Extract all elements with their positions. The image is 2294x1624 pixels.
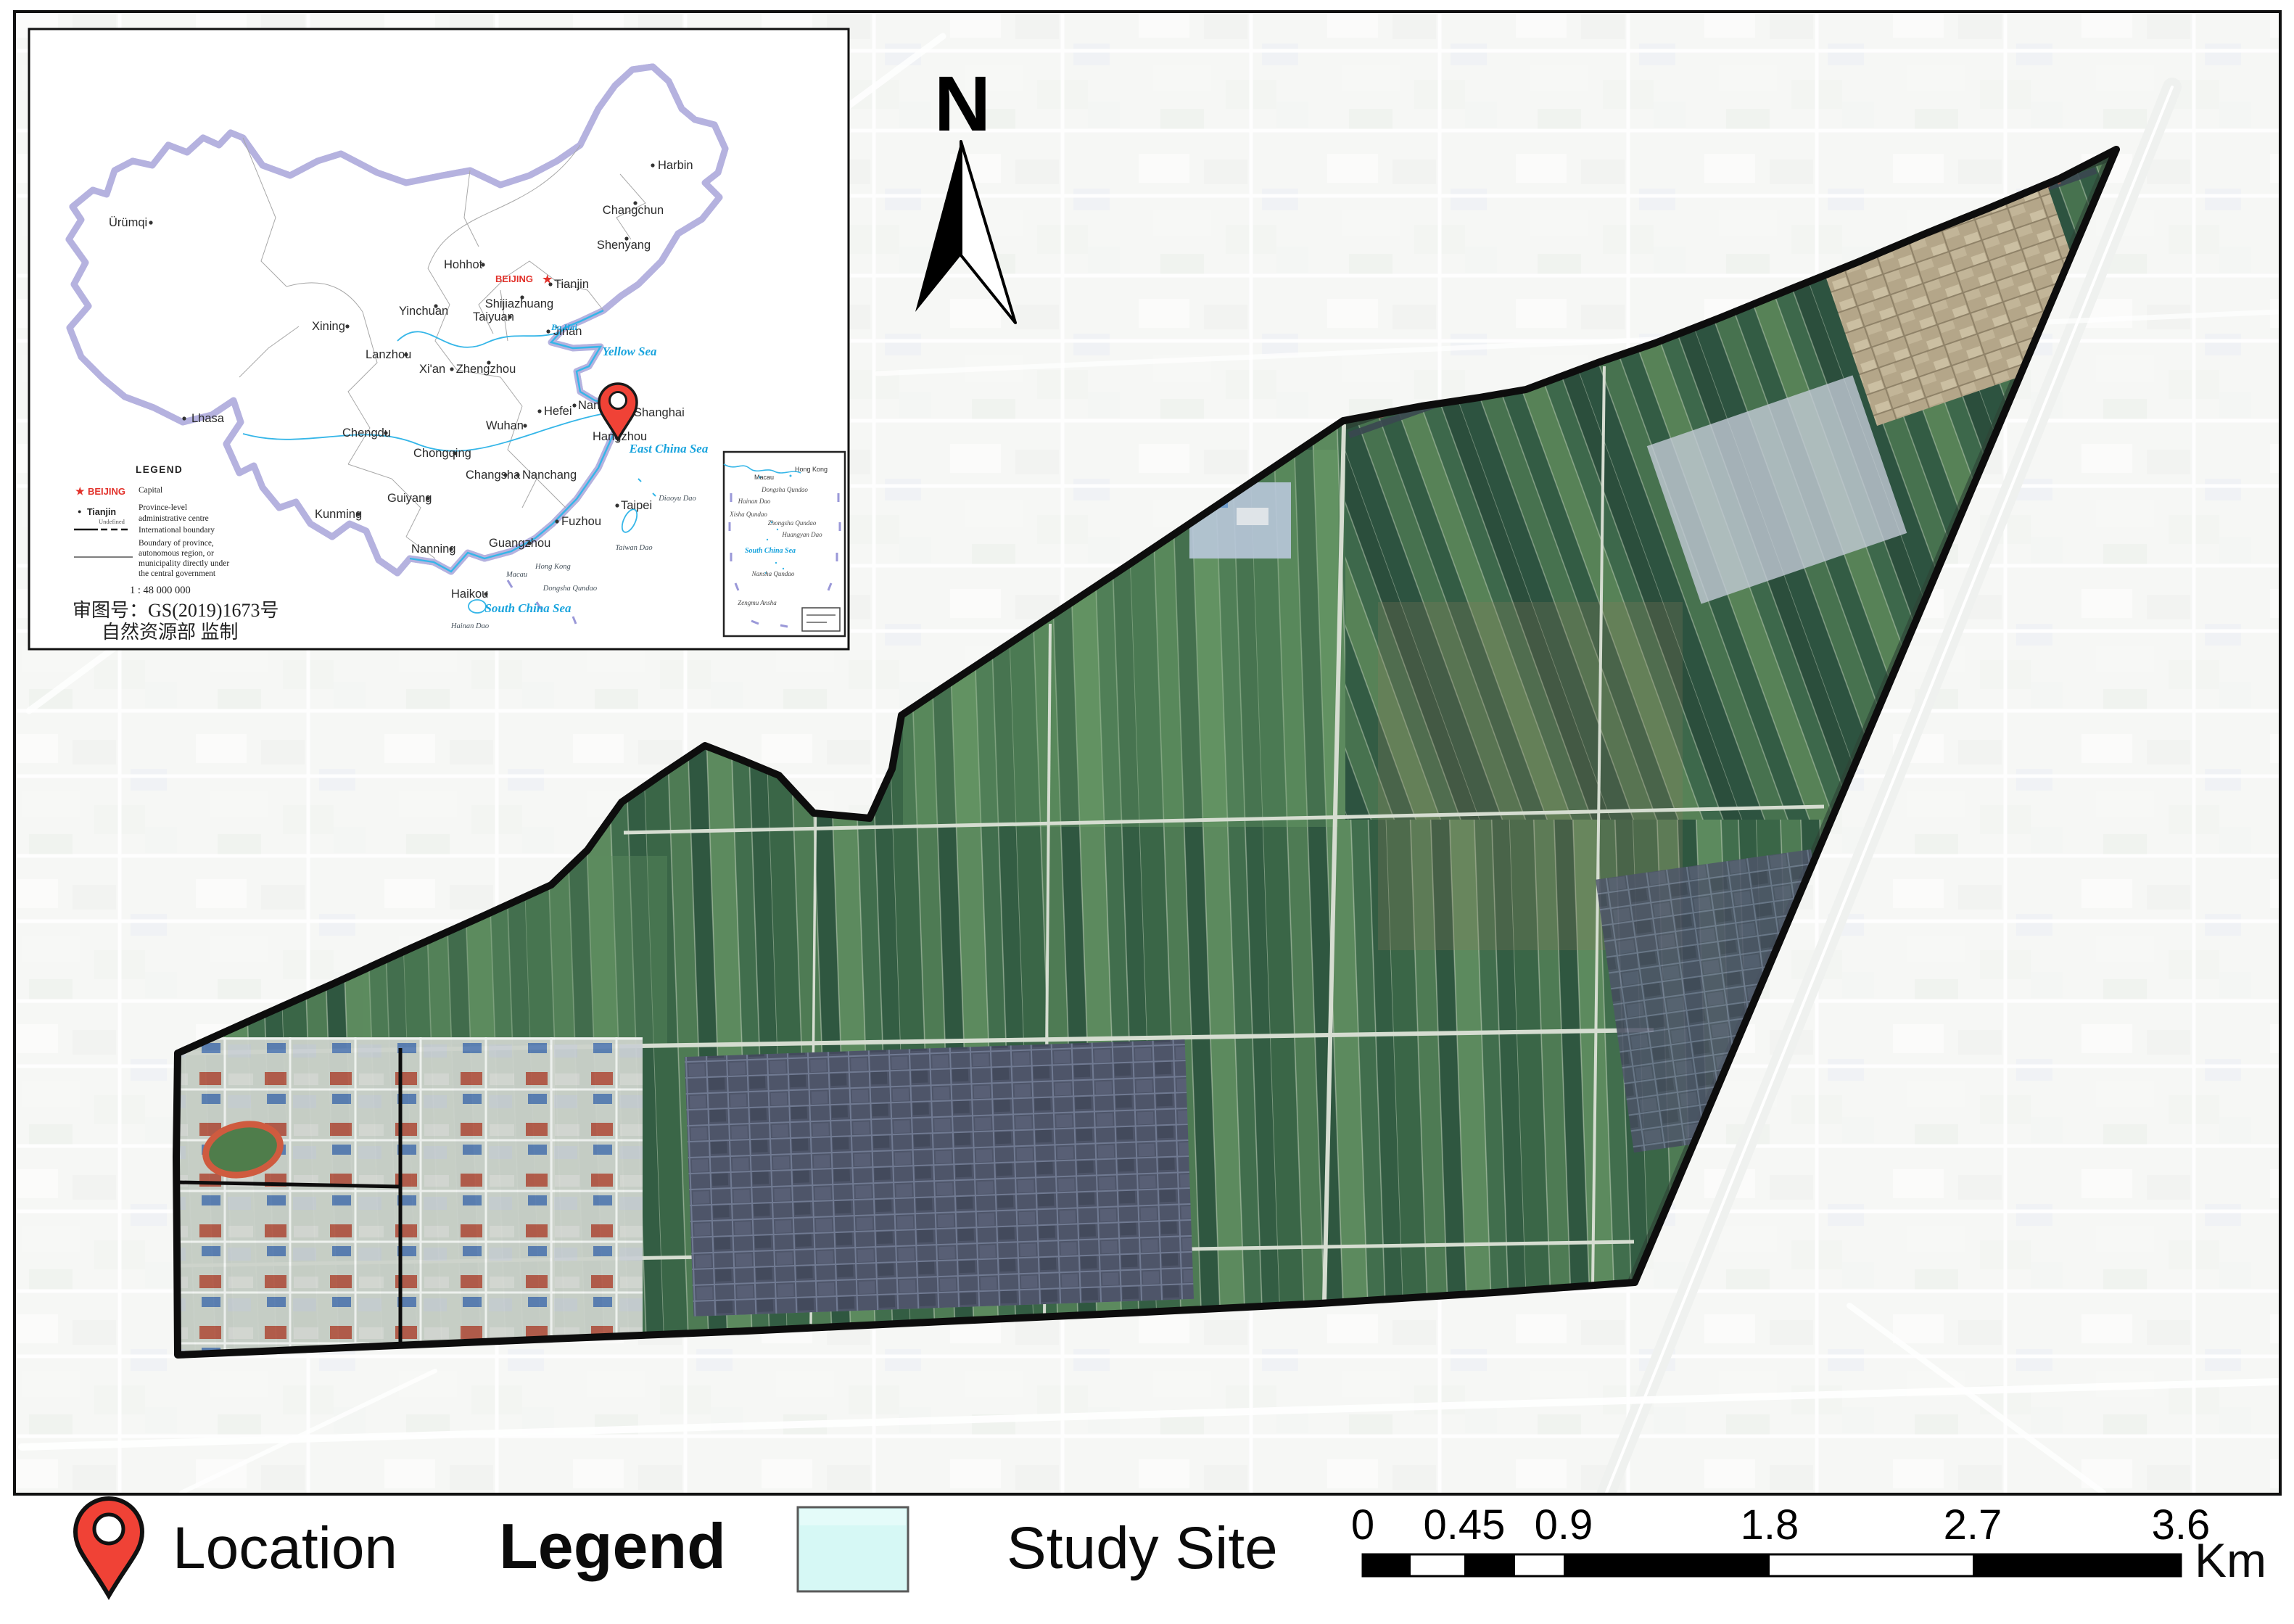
inset-city-label-dot xyxy=(516,473,519,477)
subbox-label: Hong Kong xyxy=(795,466,828,473)
inset-city-label: Shenyang xyxy=(597,239,651,252)
study-site-label: Study Site xyxy=(1007,1515,1278,1581)
legend-capital-symbol: BEIJING xyxy=(88,486,125,497)
inset-city-label: Shijiazhuang xyxy=(485,297,554,310)
north-label: N xyxy=(934,59,991,147)
inset-city-label: Wuhan xyxy=(486,419,524,432)
greenhouse-block xyxy=(685,1039,1194,1316)
svg-text:BEIJING: BEIJING xyxy=(495,273,533,284)
scale-bar: 00.450.91.82.73.6 Km xyxy=(1351,1501,2266,1587)
figure-canvas: N xyxy=(0,0,2294,1624)
inset-city-label: Shanghai xyxy=(634,406,685,419)
inset-sea-label: Bo Hai xyxy=(550,322,577,332)
inset-sea-label: South China Sea xyxy=(484,601,572,615)
legend-title: Legend xyxy=(499,1510,726,1582)
inset-city-label: Nanning xyxy=(411,543,455,556)
subbox-label: South China Sea xyxy=(745,547,796,555)
china-inset-map: ÜrümqiHarbinChangchunShenyangHohhotTianj… xyxy=(29,29,849,649)
inset-city-label-dot xyxy=(450,367,453,371)
location-label: Location xyxy=(173,1515,397,1581)
south-china-sea-inset: Hong KongMacauDongsha QundaoHainan DaoXi… xyxy=(724,452,845,636)
inset-city-label-dot xyxy=(546,329,550,333)
inset-city-label-dot xyxy=(345,324,349,328)
legend-city-desc-2: administrative centre xyxy=(139,514,209,523)
inset-city-label-dot xyxy=(182,416,186,420)
inset-city-label-dot xyxy=(537,409,541,413)
inset-city-label: Xi'an xyxy=(419,363,445,376)
inset-city-label: Ürümqi xyxy=(109,216,147,229)
legend-prov-desc-4: the central government xyxy=(139,569,216,578)
legend-city-symbol: Tianjin xyxy=(87,507,116,517)
inset-city-label: Guangzhou xyxy=(489,537,550,550)
scale-bar-ticks: 00.450.91.82.73.6 xyxy=(1351,1501,2210,1549)
capital-label: BEIJING ★ xyxy=(495,273,553,286)
legend-intl-desc: International boundary xyxy=(139,526,215,535)
inset-legend-title: LEGEND xyxy=(136,464,183,475)
inset-city-label: Hohhot xyxy=(444,258,483,271)
inset-island-label: Diaoyu Dao xyxy=(658,495,696,503)
inset-city-label: Yinchuan xyxy=(399,305,448,318)
scale-unit: Km xyxy=(2195,1533,2266,1587)
inset-scale-text: 1 : 48 000 000 xyxy=(130,585,191,596)
inset-island-label: Taiwan Dao xyxy=(615,544,652,552)
inset-city-label: Haikou xyxy=(451,588,488,601)
inset-city-label-dot xyxy=(523,424,527,427)
legend-capital-star-icon: ★ xyxy=(75,485,85,497)
subbox-label: Zengmu Ansha xyxy=(738,599,777,606)
inset-city-label: Hefei xyxy=(544,405,572,418)
inset-island-label: Hainan Dao xyxy=(450,622,489,630)
scale-tick-label: 2.7 xyxy=(1944,1501,2002,1549)
inset-city-label: Chongqing xyxy=(413,447,471,460)
scale-tick-label: 1.8 xyxy=(1741,1501,1799,1549)
inset-city-label: Kunming xyxy=(315,508,362,521)
scale-tick-label: 0.9 xyxy=(1535,1501,1593,1549)
inset-city-label: Nanchang xyxy=(522,469,577,482)
inset-city-label-dot xyxy=(651,163,654,167)
inset-city-label: Tianjin xyxy=(554,278,589,291)
inset-city-label: Guiyang xyxy=(387,492,432,505)
legend-city-desc-1: Province-level xyxy=(139,503,187,512)
legend-prov-desc-3: municipality directly under xyxy=(139,559,229,568)
inset-sea-label: Yellow Sea xyxy=(602,345,657,358)
study-site-swatch-highlight xyxy=(800,1509,906,1525)
subbox-label: Hainan Dao xyxy=(738,498,771,505)
subbox-label: Zhongsha Qundao xyxy=(768,519,817,527)
scale-tick-label: 0.45 xyxy=(1424,1501,1506,1549)
inset-city-label: Changsha xyxy=(466,469,521,482)
inset-approval-number: 审图号：GS(2019)1673号 xyxy=(73,600,279,621)
subbox-label: Dongsha Qundao xyxy=(761,486,808,493)
inset-city-label: Lhasa xyxy=(191,412,225,425)
subbox-label: Nansha Qundao xyxy=(751,570,795,577)
inset-city-label: Changchun xyxy=(603,204,664,217)
inset-city-label: Harbin xyxy=(658,159,693,172)
map-figure: N xyxy=(0,0,2294,1624)
inset-city-label: Lanzhou xyxy=(366,348,411,361)
legend-undefined-tag: Undefined xyxy=(99,518,125,525)
inset-city-label-dot xyxy=(555,519,558,523)
subbox-label: Huangyan Dao xyxy=(781,531,822,538)
scale-tick-label: 0 xyxy=(1351,1501,1374,1549)
inset-city-label-dot xyxy=(615,503,619,507)
inset-city-label-dot xyxy=(572,403,576,407)
bottom-legend: Location Legend Study Site 00.450.91.82.… xyxy=(75,1499,2266,1596)
legend-prov-desc-1: Boundary of province, xyxy=(139,539,214,548)
inset-island-label: Dongsha Qundao xyxy=(542,585,597,593)
inset-city-label-dot xyxy=(149,220,152,224)
inset-sea-label: East China Sea xyxy=(629,442,709,456)
inset-city-label: Taiyuan xyxy=(473,310,514,323)
inset-city-label: Chengdu xyxy=(342,426,391,440)
urban-block xyxy=(178,1037,643,1355)
inset-city-label: Taipei xyxy=(621,499,652,512)
subbox-label: Xisha Qundao xyxy=(729,511,767,518)
subbox-scale-box xyxy=(802,608,840,631)
subbox-label: Macau xyxy=(754,474,774,481)
legend-capital-desc: Capital xyxy=(139,486,162,495)
inset-island-label: Macau xyxy=(506,571,527,579)
legend-city-dot-icon: ● xyxy=(78,508,81,515)
location-pin-icon xyxy=(75,1499,142,1596)
legend-prov-desc-2: autonomous region, or xyxy=(139,549,214,558)
inset-ministry: 自然资源部 监制 xyxy=(102,622,239,643)
capital-star-icon: ★ xyxy=(542,273,553,286)
inset-city-label: Zhengzhou xyxy=(456,363,516,376)
inset-city-label: Fuzhou xyxy=(561,515,601,528)
inset-city-label: Xining xyxy=(312,320,345,333)
inset-island-label: Hong Kong xyxy=(535,563,571,571)
